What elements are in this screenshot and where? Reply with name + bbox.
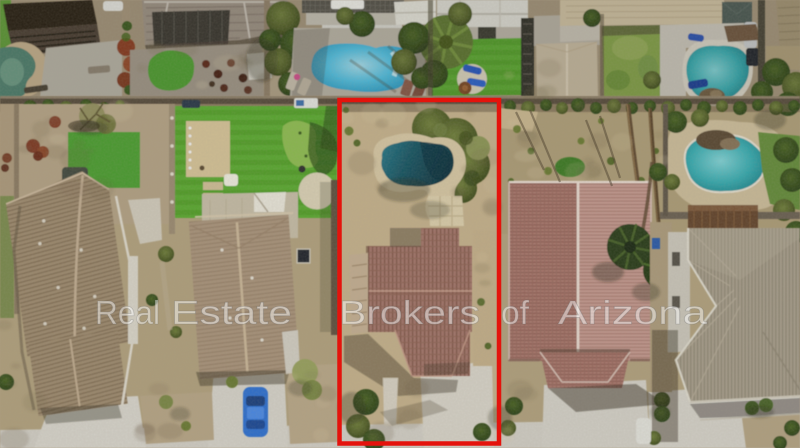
svg-text:Arizona: Arizona: [558, 295, 707, 332]
svg-text:of: of: [501, 295, 530, 332]
svg-text:Real: Real: [95, 295, 160, 332]
svg-text:Estate: Estate: [171, 295, 292, 332]
svg-text:Brokers: Brokers: [339, 295, 480, 332]
